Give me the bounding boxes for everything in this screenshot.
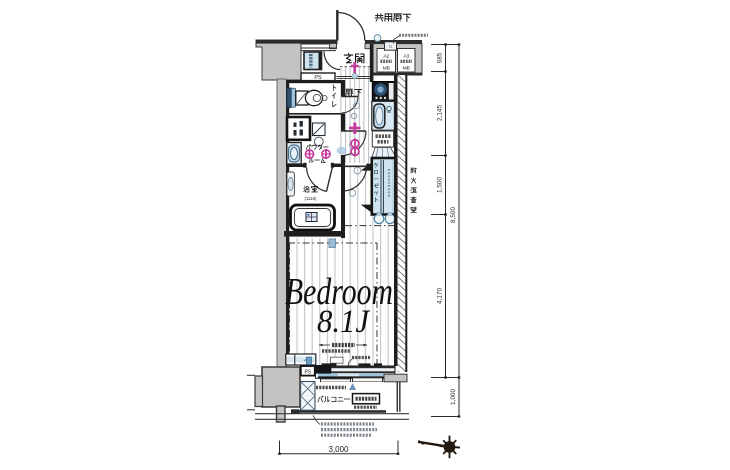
svg-text:A2: A2 bbox=[383, 54, 389, 60]
svg-text:PS: PS bbox=[304, 369, 311, 375]
svg-text:4,170: 4,170 bbox=[437, 288, 444, 304]
svg-text:A3: A3 bbox=[403, 54, 409, 60]
svg-text:1,500: 1,500 bbox=[437, 177, 444, 193]
svg-text:MB: MB bbox=[383, 66, 390, 72]
svg-text:G: G bbox=[389, 44, 392, 49]
svg-text:MB: MB bbox=[403, 66, 410, 72]
svg-text:1,000: 1,000 bbox=[450, 389, 457, 405]
svg-text:685: 685 bbox=[437, 52, 444, 63]
svg-text:2,145: 2,145 bbox=[437, 105, 444, 121]
svg-text:3,000: 3,000 bbox=[328, 445, 349, 454]
svg-text:8.1J: 8.1J bbox=[317, 304, 370, 340]
svg-text:(1116): (1116) bbox=[304, 196, 317, 201]
svg-text:8,500: 8,500 bbox=[450, 207, 457, 223]
